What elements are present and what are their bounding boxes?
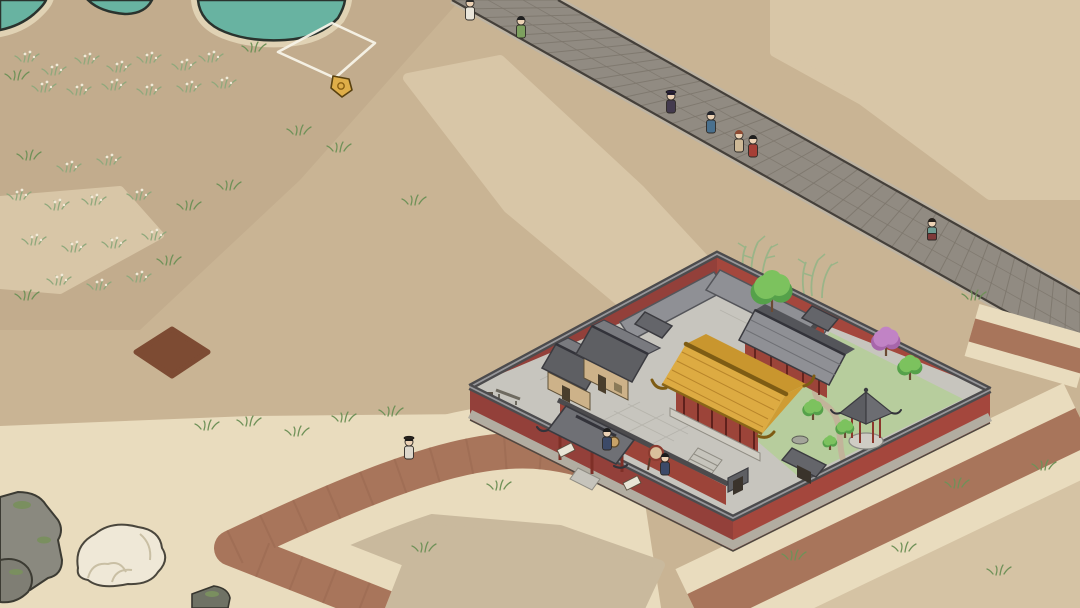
garden-rock [792, 436, 808, 444]
person-traveler-path[interactable] [404, 436, 414, 459]
person-walker-dark-purple[interactable] [666, 90, 676, 113]
moss-patch [37, 537, 51, 544]
person-walker-red[interactable] [749, 135, 758, 157]
person-walker-white-top[interactable] [466, 0, 475, 20]
game-stage[interactable] [0, 0, 1080, 608]
person-walker-beige[interactable] [735, 130, 744, 152]
game-viewport[interactable] [0, 0, 1080, 608]
moss-patch [9, 569, 23, 575]
person-guard-gate[interactable] [603, 428, 612, 450]
person-guard-drum[interactable] [661, 453, 670, 475]
person-walker-teal-skirt[interactable] [928, 218, 937, 240]
person-walker-green[interactable] [517, 16, 526, 38]
moss-patch [13, 501, 31, 509]
moss-patch [205, 591, 219, 597]
person-walker-blue[interactable] [707, 111, 716, 133]
